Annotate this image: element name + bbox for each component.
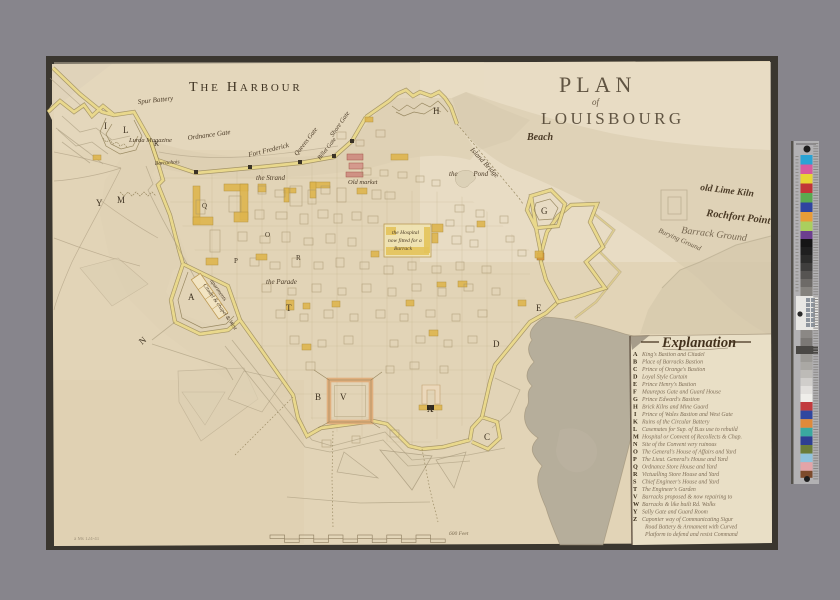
svg-text:Platform to defend and resist: Platform to defend and resist Command: [644, 531, 738, 538]
svg-text:P: P: [234, 257, 238, 265]
svg-text:Barracks proposed & now repair: Barracks proposed & now repairing to: [642, 495, 732, 501]
svg-text:Prince Henry's Bastion: Prince Henry's Bastion: [641, 382, 696, 388]
svg-text:A: A: [633, 351, 638, 358]
svg-text:H: H: [433, 106, 440, 116]
svg-text:Q: Q: [202, 202, 207, 210]
svg-text:Place of Barracks Bastion: Place of Barracks Bastion: [641, 359, 703, 366]
svg-text:B: B: [315, 392, 321, 402]
svg-text:the Strand: the Strand: [256, 174, 285, 182]
svg-text:L: L: [123, 125, 129, 135]
svg-text:Lurda Magazine: Lurda Magazine: [128, 137, 172, 144]
svg-text:H: H: [633, 404, 638, 411]
svg-text:THE HARBOUR: THE HARBOUR: [189, 80, 303, 95]
svg-text:Y: Y: [96, 198, 103, 208]
svg-text:G: G: [633, 396, 638, 403]
svg-text:LOUISBOURG: LOUISBOURG: [541, 109, 685, 128]
svg-text:Explanation: Explanation: [661, 335, 736, 351]
svg-text:M: M: [633, 434, 639, 441]
svg-text:K: K: [154, 140, 159, 148]
svg-text:the Hospital: the Hospital: [392, 230, 420, 236]
svg-text:V: V: [633, 494, 638, 501]
svg-text:B: B: [633, 359, 637, 366]
svg-text:Victualling Store House and Ya: Victualling Store House and Yard: [642, 472, 719, 478]
svg-text:E: E: [536, 303, 542, 313]
svg-text:Site of the Convent very ruino: Site of the Convent very ruinous: [642, 441, 717, 448]
svg-text:O: O: [633, 449, 638, 456]
svg-text:V: V: [340, 392, 347, 402]
svg-text:C: C: [633, 366, 637, 373]
svg-text:F: F: [633, 389, 637, 396]
svg-text:the Parade: the Parade: [266, 278, 297, 286]
svg-text:a Ms 124-41: a Ms 124-41: [74, 537, 100, 542]
svg-text:P: P: [633, 456, 637, 463]
svg-text:O: O: [265, 231, 270, 239]
svg-text:Ruins of the Circular Battery: Ruins of the Circular Battery: [641, 419, 710, 426]
svg-text:Sally Gate and Guard Room: Sally Gate and Guard Room: [642, 510, 708, 516]
svg-text:King's Bastion and Citadel: King's Bastion and Citadel: [641, 352, 705, 358]
svg-text:Maurepas Gate and Guard House: Maurepas Gate and Guard House: [641, 390, 721, 396]
svg-text:PLAN: PLAN: [559, 72, 636, 97]
svg-text:Prince of Wales Bastion and We: Prince of Wales Bastion and West Gate: [641, 411, 733, 418]
svg-text:now fitted for a: now fitted for a: [388, 237, 422, 244]
svg-text:Ordnance Store House and Yard: Ordnance Store House and Yard: [642, 465, 717, 471]
svg-text:Beach: Beach: [526, 132, 554, 143]
svg-text:Q: Q: [633, 464, 638, 471]
svg-text:L: L: [633, 426, 637, 433]
svg-text:Y: Y: [633, 509, 638, 516]
svg-text:Caponier way of Communicating: Caponier way of Communicating Sigur: [642, 516, 734, 523]
svg-text:I: I: [104, 121, 107, 131]
svg-text:Barracks & like built Rd. Walk: Barracks & like built Rd. Walks: [642, 502, 716, 508]
svg-text:Road Battery & Armament with C: Road Battery & Armament with Curved: [644, 525, 737, 531]
svg-text:K: K: [633, 419, 638, 426]
svg-text:Casemates for Sup. of B.us use: Casemates for Sup. of B.us use to rebuil…: [642, 426, 738, 433]
svg-text:Brick Kilns and Mine Guard: Brick Kilns and Mine Guard: [642, 405, 708, 411]
svg-text:D: D: [493, 339, 500, 349]
svg-text:M: M: [117, 195, 125, 205]
svg-text:600 Feet: 600 Feet: [449, 531, 469, 537]
svg-text:X: X: [427, 404, 434, 414]
svg-text:W: W: [633, 501, 640, 508]
svg-text:Old market: Old market: [348, 179, 378, 186]
svg-text:Hospital or Convent of Recolle: Hospital or Convent of Recollects & Chap…: [641, 434, 742, 441]
svg-text:Prince Edward's Bastion: Prince Edward's Bastion: [641, 397, 700, 403]
svg-text:The Engineer's Garden: The Engineer's Garden: [642, 487, 696, 493]
svg-text:Z: Z: [633, 516, 637, 523]
svg-text:The General's House of Affairs: The General's House of Affairs and Yard: [642, 449, 736, 456]
svg-text:G: G: [541, 206, 548, 216]
svg-text:Prince of Orange's Bastion: Prince of Orange's Bastion: [641, 366, 705, 373]
svg-text:S: S: [633, 479, 637, 486]
svg-text:Loyal Style Curtain: Loyal Style Curtain: [641, 375, 688, 381]
svg-text:C: C: [484, 432, 490, 442]
svg-text:D: D: [633, 374, 638, 381]
svg-text:Barrack: Barrack: [394, 246, 413, 252]
svg-text:A: A: [188, 292, 195, 302]
svg-text:The Lieut. General's House and: The Lieut. General's House and Yard: [642, 457, 728, 463]
svg-text:Chief Engineer's House and Yar: Chief Engineer's House and Yard: [642, 479, 719, 486]
svg-text:T: T: [286, 303, 292, 313]
svg-text:R: R: [296, 254, 301, 262]
svg-text:R: R: [633, 471, 638, 478]
svg-text:E: E: [633, 381, 637, 388]
svg-text:N: N: [633, 441, 638, 448]
